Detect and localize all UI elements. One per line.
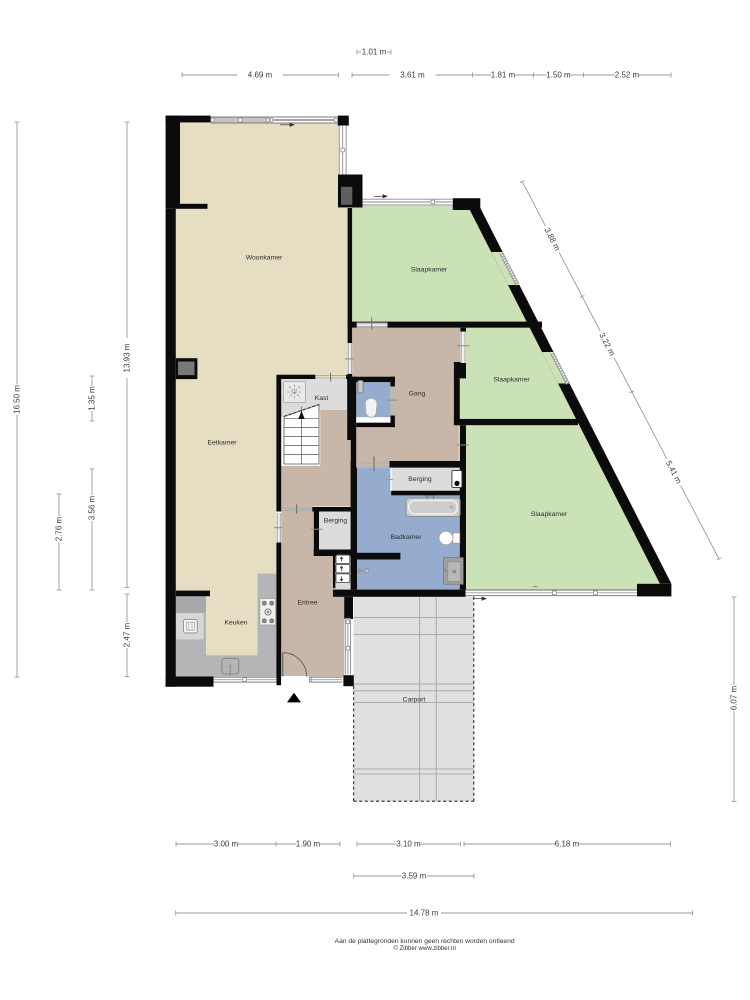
svg-text:2.47 m: 2.47 m xyxy=(123,622,132,647)
svg-text:6.18 m: 6.18 m xyxy=(555,840,580,849)
svg-text:Entree: Entree xyxy=(297,599,317,606)
svg-text:Woonkamer: Woonkamer xyxy=(246,254,283,261)
svg-text:3.59 m: 3.59 m xyxy=(402,872,427,881)
svg-text:Keuken: Keuken xyxy=(224,619,247,626)
svg-text:Eetkamer: Eetkamer xyxy=(207,439,237,446)
svg-text:Slaapkamer: Slaapkamer xyxy=(531,511,568,518)
svg-text:Gang: Gang xyxy=(409,390,426,397)
svg-text:© Zibber www.zibber.nl: © Zibber www.zibber.nl xyxy=(393,945,455,952)
svg-text:Slaapkamer: Slaapkamer xyxy=(411,266,448,273)
svg-text:1.01 m: 1.01 m xyxy=(362,48,387,57)
svg-text:14.78 m: 14.78 m xyxy=(410,909,439,918)
svg-text:2.52 m: 2.52 m xyxy=(615,71,640,80)
svg-text:Berging: Berging xyxy=(324,517,348,524)
svg-text:16.50 m: 16.50 m xyxy=(13,385,22,414)
svg-text:3.61 m: 3.61 m xyxy=(400,71,425,80)
svg-text:3.56 m: 3.56 m xyxy=(88,495,97,520)
svg-text:Badkamer: Badkamer xyxy=(391,534,423,541)
svg-text:1.35 m: 1.35 m xyxy=(88,386,97,411)
svg-text:Slaapkamer: Slaapkamer xyxy=(493,376,530,383)
svg-text:13.93 m: 13.93 m xyxy=(123,343,132,372)
svg-text:1.50 m: 1.50 m xyxy=(546,71,571,80)
svg-text:3.00 m: 3.00 m xyxy=(214,840,239,849)
svg-text:Carport: Carport xyxy=(403,696,426,703)
svg-text:Aan de plattegronden kunnen ge: Aan de plattegronden kunnen geen rechten… xyxy=(335,938,515,945)
svg-text:3.10 m: 3.10 m xyxy=(396,840,421,849)
svg-text:4.69 m: 4.69 m xyxy=(248,71,273,80)
svg-text:Kast: Kast xyxy=(315,395,329,402)
svg-text:1.90 m: 1.90 m xyxy=(296,840,321,849)
svg-text:Berging: Berging xyxy=(408,476,432,483)
svg-text:2.76 m: 2.76 m xyxy=(55,516,64,541)
svg-text:1.81 m: 1.81 m xyxy=(491,71,516,80)
svg-text:6.07 m: 6.07 m xyxy=(730,685,739,710)
